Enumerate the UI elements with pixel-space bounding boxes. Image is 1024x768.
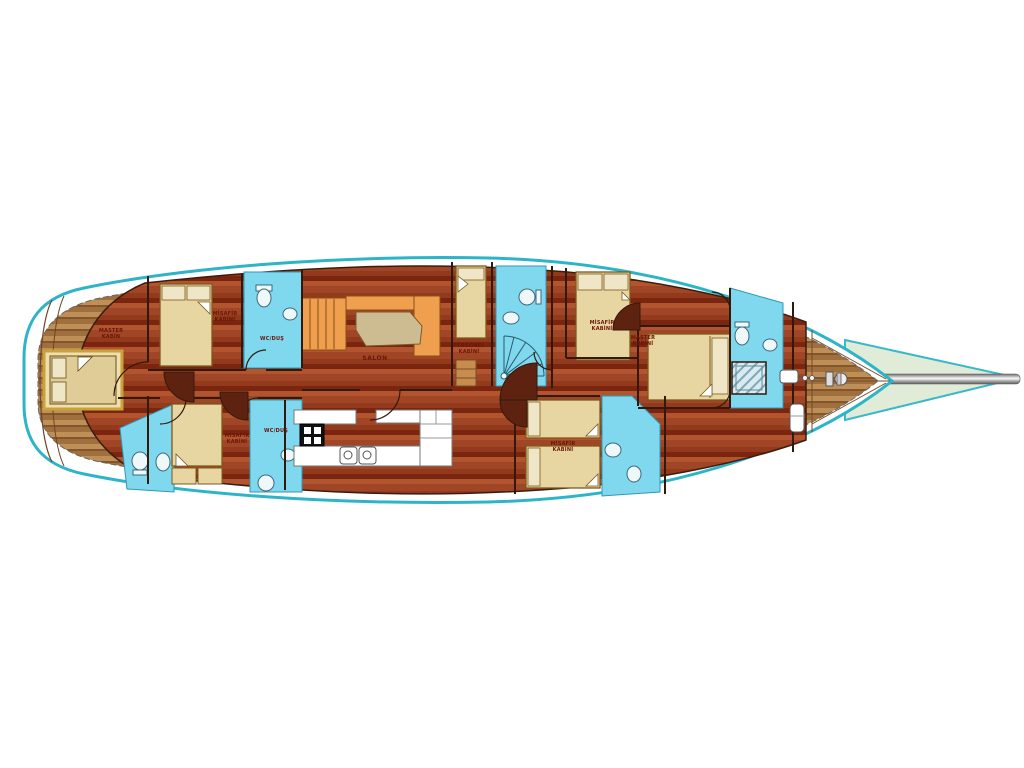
steps [456, 360, 476, 386]
galley-counter [376, 410, 422, 423]
label-master-aft: KABİN [102, 333, 121, 340]
label-guest-bottom-aft: MİSAFİR [225, 432, 250, 439]
pillow [528, 402, 540, 436]
sink-icon [503, 312, 519, 324]
stove-icon [300, 424, 324, 446]
toilet-icon [133, 470, 147, 475]
pillow [712, 338, 728, 394]
deck-plan-canvas: MASTER KABİN MİSAFİR KABİNİ WC/DUŞ MİSAF… [0, 0, 1024, 768]
bed-guest-top-aft [160, 284, 212, 366]
label-guest-twin: MİSAFİR [551, 440, 576, 447]
deck-hatch [790, 404, 804, 432]
toilet-icon [735, 327, 749, 345]
label-guest-top-fore: KABİNİ [592, 325, 613, 332]
label-guest-twin: KABİNİ [553, 446, 574, 453]
toilet-icon [735, 322, 749, 327]
toilet-icon [258, 475, 274, 491]
pillow [604, 274, 628, 290]
toilet-icon [519, 289, 535, 305]
sink-icon [281, 449, 295, 461]
sink-icon [283, 308, 297, 320]
toilet-icon [132, 452, 148, 470]
bed-master-fore [648, 334, 730, 400]
sink-icon [763, 339, 777, 351]
label-guest-top-fore: MİSAFİR [590, 319, 615, 326]
bed-footboard [198, 468, 222, 484]
toilet-icon [627, 466, 641, 482]
shower-icon [732, 362, 766, 394]
galley-counter [294, 410, 356, 424]
sink-icon [156, 453, 170, 471]
label-wc-bottom: WC/DUŞ [264, 428, 288, 434]
companionway-steps [302, 298, 346, 350]
pillow [187, 286, 210, 300]
label-guest-top-aft: MİSAFİR [213, 310, 238, 317]
bed-footboard [172, 468, 196, 484]
pillow [162, 286, 185, 300]
toilet-icon [536, 290, 541, 304]
bathroom-top-aft [244, 272, 302, 368]
label-guest-bottom-aft: KABİNİ [227, 438, 248, 445]
label-master-fore: KABİNİ [633, 340, 654, 347]
pillow [52, 382, 66, 402]
toilet-icon [257, 289, 271, 307]
pillow [528, 448, 540, 486]
bathroom-fore [730, 288, 783, 408]
label-guest-top-aft: KABİNİ [215, 316, 236, 323]
pillow [578, 274, 602, 290]
yacht-deck-plan: MASTER KABİN MİSAFİR KABİNİ WC/DUŞ MİSAF… [0, 0, 1024, 768]
pillow [458, 268, 484, 280]
label-salon: SALON [362, 355, 387, 362]
pillow [52, 358, 66, 378]
bed-twin-1 [526, 400, 600, 438]
label-wc-top: WC/DUŞ [260, 336, 284, 342]
sink-icon [605, 443, 621, 457]
label-crew: KABİNİ [459, 348, 480, 355]
salon-table [356, 312, 422, 346]
bed-master-aft [44, 351, 122, 409]
